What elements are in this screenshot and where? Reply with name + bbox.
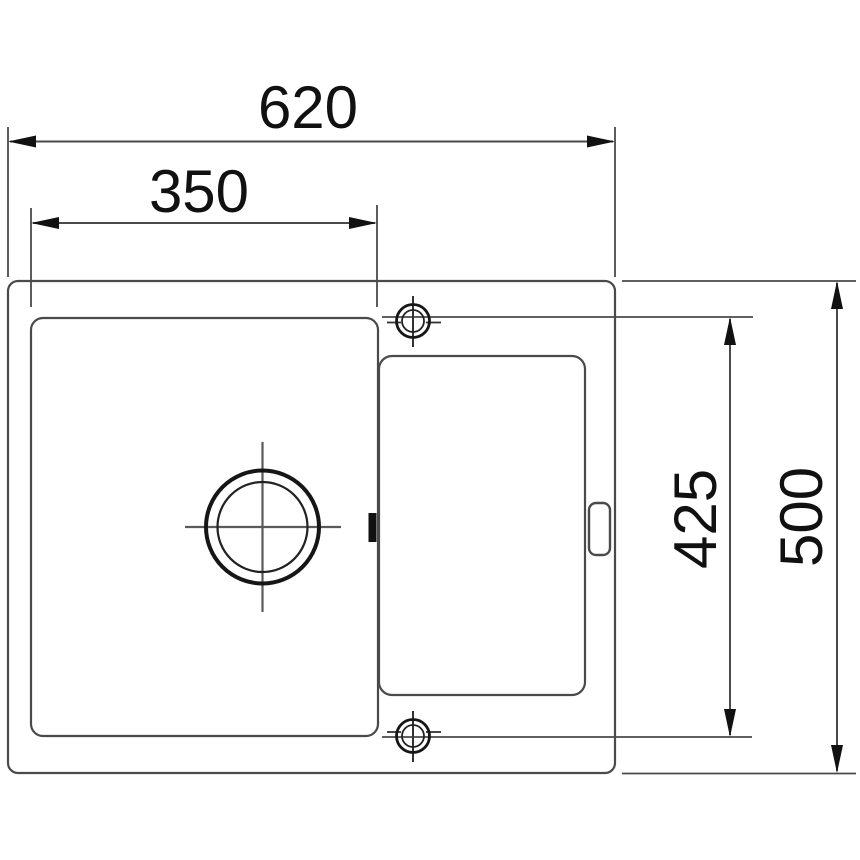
dimension-overall-depth: 500 xyxy=(622,281,856,774)
arrowhead-350-right xyxy=(349,217,377,229)
dimension-overall-width: 620 xyxy=(8,74,615,277)
drain-hole-icon xyxy=(185,442,341,612)
arrowhead-500-top xyxy=(831,281,843,309)
arrowhead-425-bottom xyxy=(724,709,736,737)
arrowhead-620-right xyxy=(587,136,615,148)
dimension-label-350: 350 xyxy=(149,158,249,225)
dimension-label-425: 425 xyxy=(662,469,729,569)
arrowhead-620-left xyxy=(8,136,36,148)
bowl-divider-mark xyxy=(369,513,377,542)
drainer-area xyxy=(379,356,585,695)
dimension-bowl-width: 350 xyxy=(31,158,377,307)
arrowhead-425-top xyxy=(724,317,736,345)
tap-hole-top-icon xyxy=(382,296,753,347)
arrowhead-500-bottom xyxy=(831,745,843,773)
tap-hole-bottom-icon xyxy=(382,711,752,762)
dimension-label-620: 620 xyxy=(258,74,358,141)
dimension-label-500: 500 xyxy=(768,467,835,567)
arrowhead-350-left xyxy=(31,217,59,229)
technical-drawing-canvas: 620 350 425 500 xyxy=(0,0,860,860)
dimension-inner-span: 425 xyxy=(662,317,736,737)
overflow-slot xyxy=(589,503,610,555)
sink-dimension-drawing: 620 350 425 500 xyxy=(0,0,860,860)
